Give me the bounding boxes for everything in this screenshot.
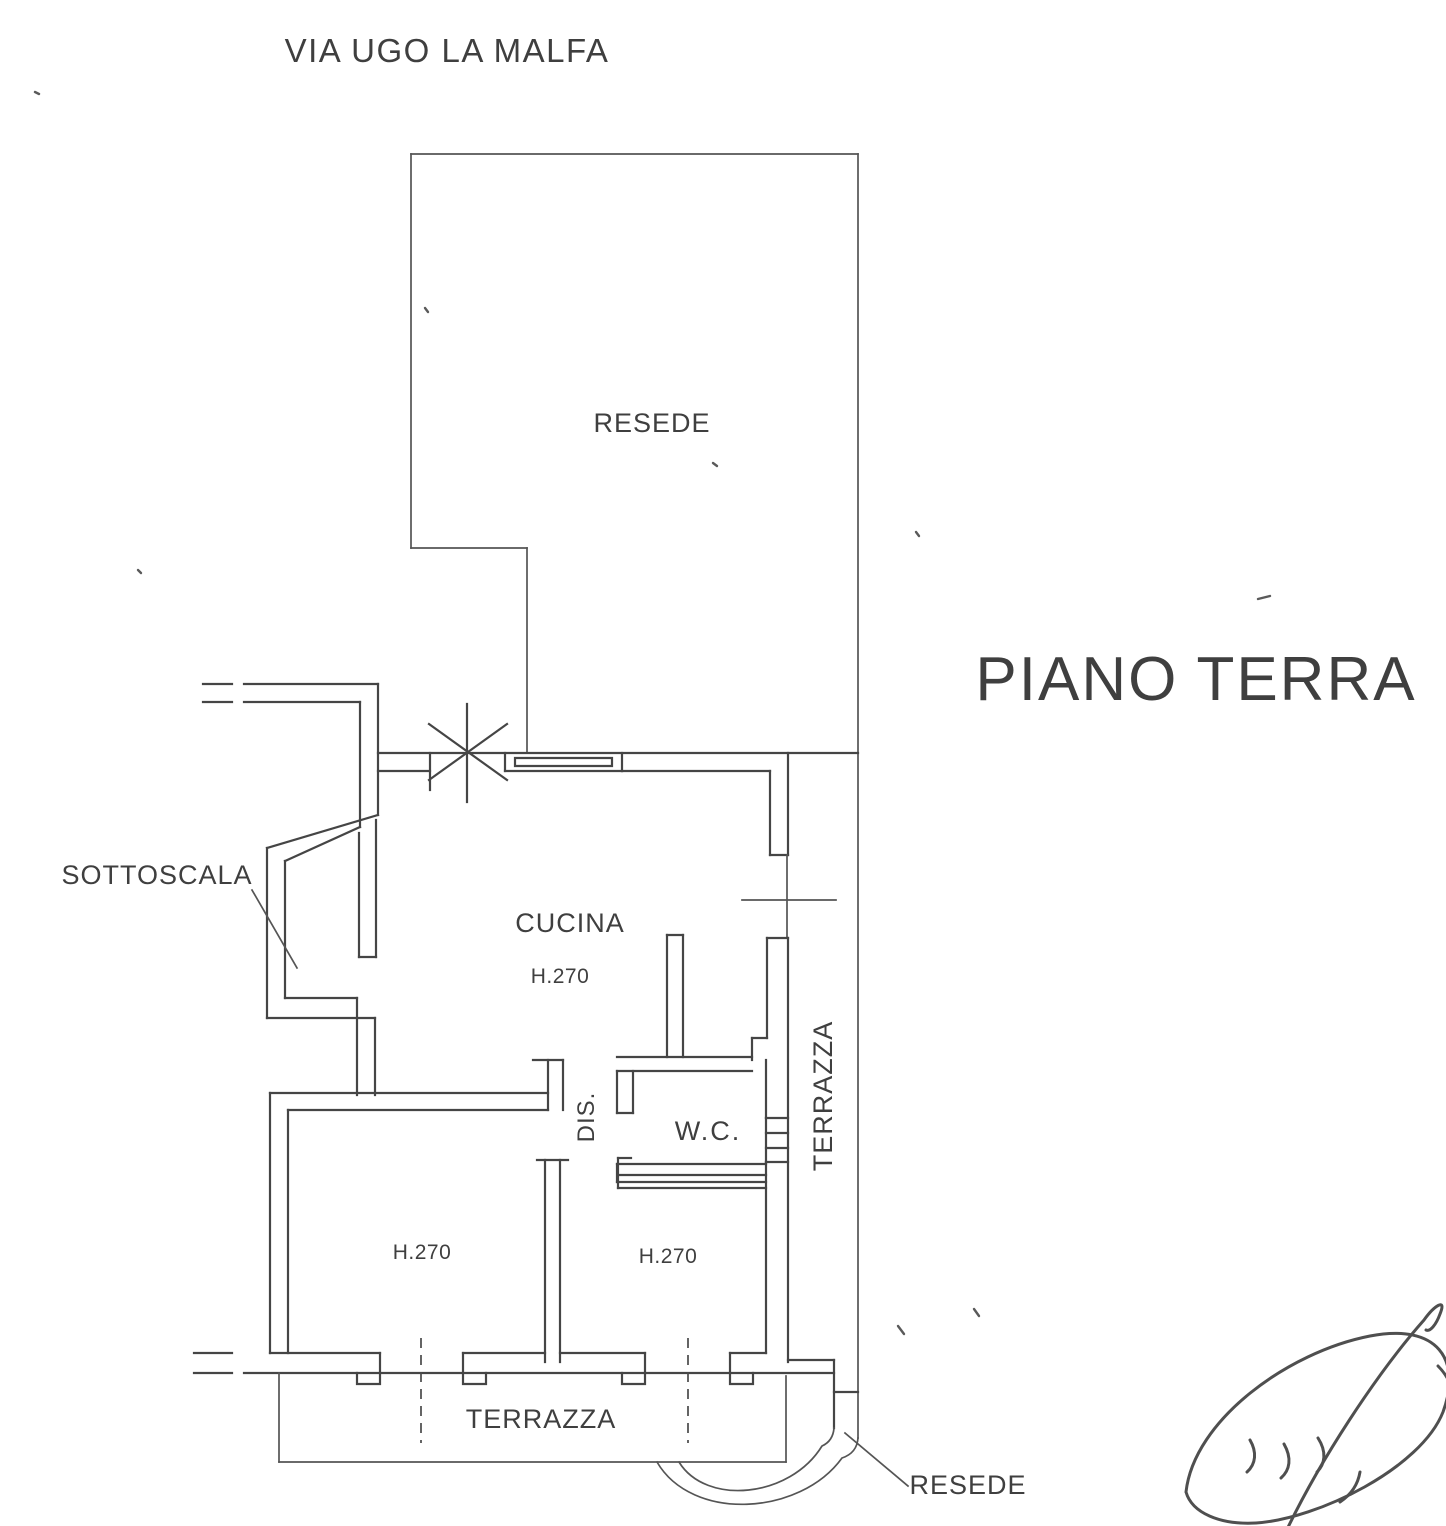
room-label-cucina: CUCINA — [515, 908, 625, 938]
signature — [1186, 1305, 1446, 1526]
walls — [244, 684, 858, 1384]
room-label-sottoscala: SOTTOSCALA — [61, 860, 252, 890]
room-label-dis: DIS. — [573, 1092, 600, 1143]
room-label-wc: W.C. — [675, 1116, 742, 1146]
room-label-resede-top: RESEDE — [593, 408, 710, 438]
street-label: VIA UGO LA MALFA — [285, 32, 610, 69]
floor-plan-drawing: VIA UGO LA MALFA PIANO TERRA RESEDE SOTT… — [0, 0, 1446, 1526]
room-label-terrazza-bottom: TERRAZZA — [466, 1404, 617, 1434]
floor-title: PIANO TERRA — [975, 645, 1416, 714]
scanned-floor-plan-page: VIA UGO LA MALFA PIANO TERRA RESEDE SOTT… — [0, 0, 1446, 1526]
room-label-resede-bottom: RESEDE — [909, 1470, 1026, 1500]
window-wc — [766, 1118, 788, 1162]
property-boundary-lines — [411, 154, 858, 1438]
window-top-wall — [505, 753, 622, 771]
height-label-room-left: H.270 — [393, 1241, 452, 1264]
room-label-terrazza-side: TERRAZZA — [808, 1021, 838, 1172]
boundary-break-marks — [194, 684, 232, 1373]
height-label-room-right: H.270 — [639, 1245, 698, 1268]
height-label-cucina: H.270 — [531, 965, 590, 988]
